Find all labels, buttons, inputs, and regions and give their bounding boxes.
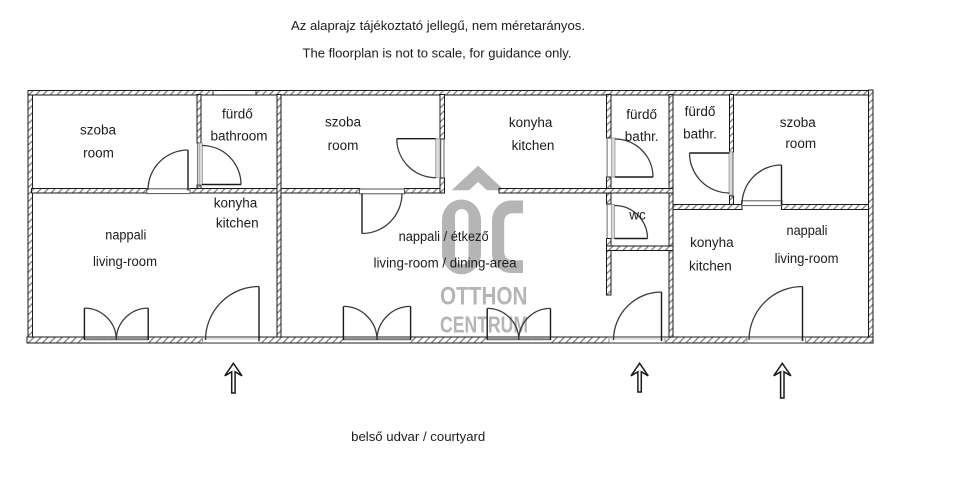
svg-text:fürdő: fürdő [222, 107, 253, 122]
svg-text:living-room / dining-area: living-room / dining-area [374, 256, 517, 271]
svg-text:room: room [785, 136, 816, 151]
svg-text:bathr.: bathr. [683, 127, 717, 142]
svg-text:szoba: szoba [80, 123, 117, 138]
svg-text:szoba: szoba [780, 115, 817, 130]
svg-text:konyha: konyha [214, 196, 258, 211]
svg-text:konyha: konyha [509, 115, 553, 130]
svg-text:living-room: living-room [775, 251, 839, 266]
svg-text:bathroom: bathroom [210, 128, 267, 143]
svg-text:room: room [83, 146, 114, 161]
svg-text:bathr.: bathr. [625, 129, 659, 144]
svg-text:The floorplan is not to scale,: The floorplan is not to scale, for guida… [303, 46, 572, 61]
svg-text:nappali: nappali [105, 228, 146, 243]
svg-text:fürdő: fürdő [685, 104, 716, 119]
svg-text:belső udvar / courtyard: belső udvar / courtyard [351, 429, 485, 444]
svg-text:fürdő: fürdő [626, 107, 657, 122]
svg-text:nappali: nappali [787, 223, 828, 238]
svg-text:Az alaprajz tájékoztató jelleg: Az alaprajz tájékoztató jellegű, nem mér… [291, 18, 585, 33]
svg-text:OTTHON: OTTHON [440, 283, 528, 311]
svg-text:room: room [328, 138, 359, 153]
svg-text:nappali / étkező: nappali / étkező [399, 229, 489, 244]
svg-text:kitchen: kitchen [216, 216, 259, 231]
svg-text:living-room: living-room [93, 254, 157, 269]
svg-text:kitchen: kitchen [689, 259, 732, 274]
svg-text:konyha: konyha [690, 235, 734, 250]
svg-text:kitchen: kitchen [512, 138, 555, 153]
svg-text:szoba: szoba [325, 114, 362, 129]
svg-text:wc: wc [628, 208, 646, 223]
